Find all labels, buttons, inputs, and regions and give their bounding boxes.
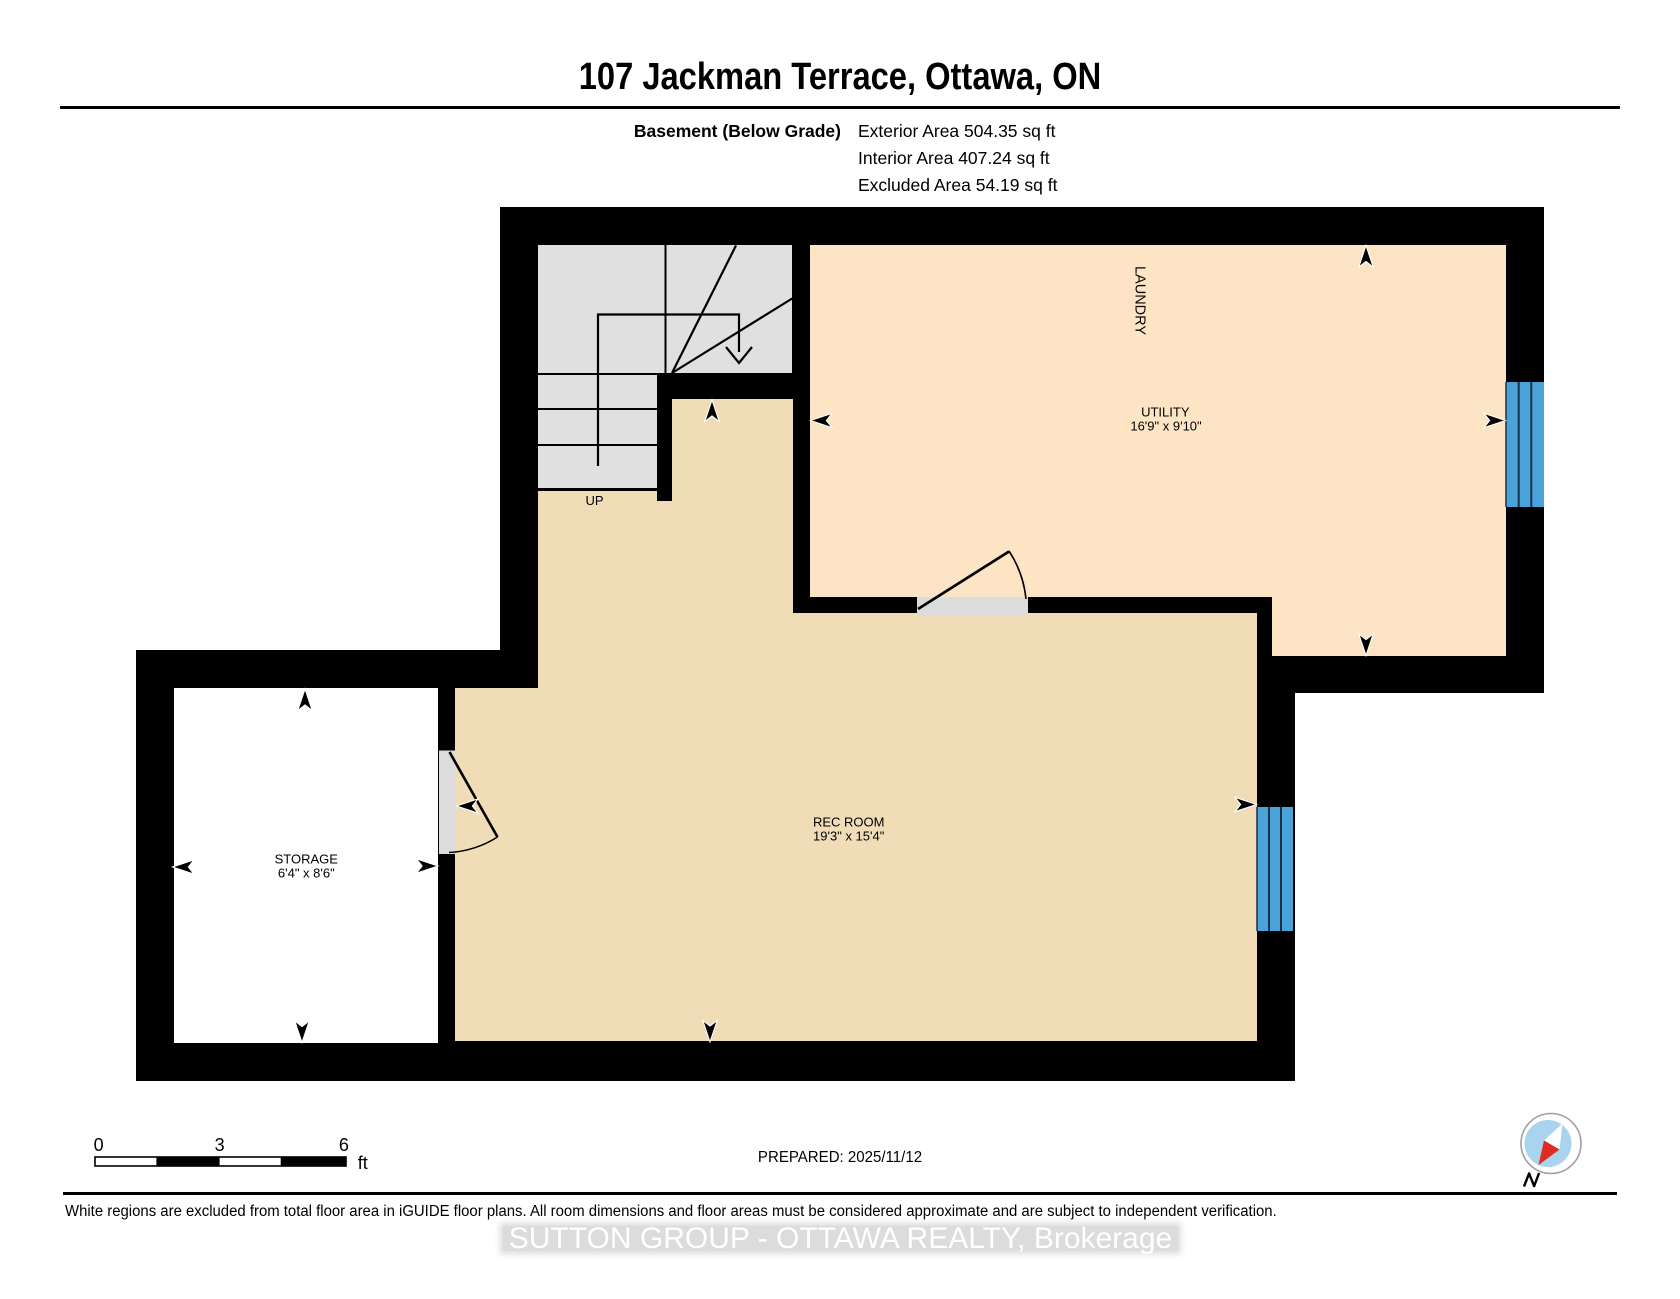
svg-text:ft: ft [358,1153,368,1173]
svg-text:3: 3 [215,1135,225,1155]
svg-text:REC ROOM: REC ROOM [813,815,885,830]
svg-text:0: 0 [94,1135,104,1155]
svg-text:STORAGE: STORAGE [275,852,339,867]
svg-text:19'3" x 15'4": 19'3" x 15'4" [813,829,885,844]
svg-text:LAUNDRY: LAUNDRY [1132,266,1148,335]
svg-text:UTILITY: UTILITY [1141,405,1190,420]
svg-text:6: 6 [339,1135,349,1155]
svg-text:UP: UP [585,493,603,508]
svg-text:16'9" x 9'10": 16'9" x 9'10" [1130,419,1202,434]
svg-text:6'4" x 8'6": 6'4" x 8'6" [278,866,335,881]
